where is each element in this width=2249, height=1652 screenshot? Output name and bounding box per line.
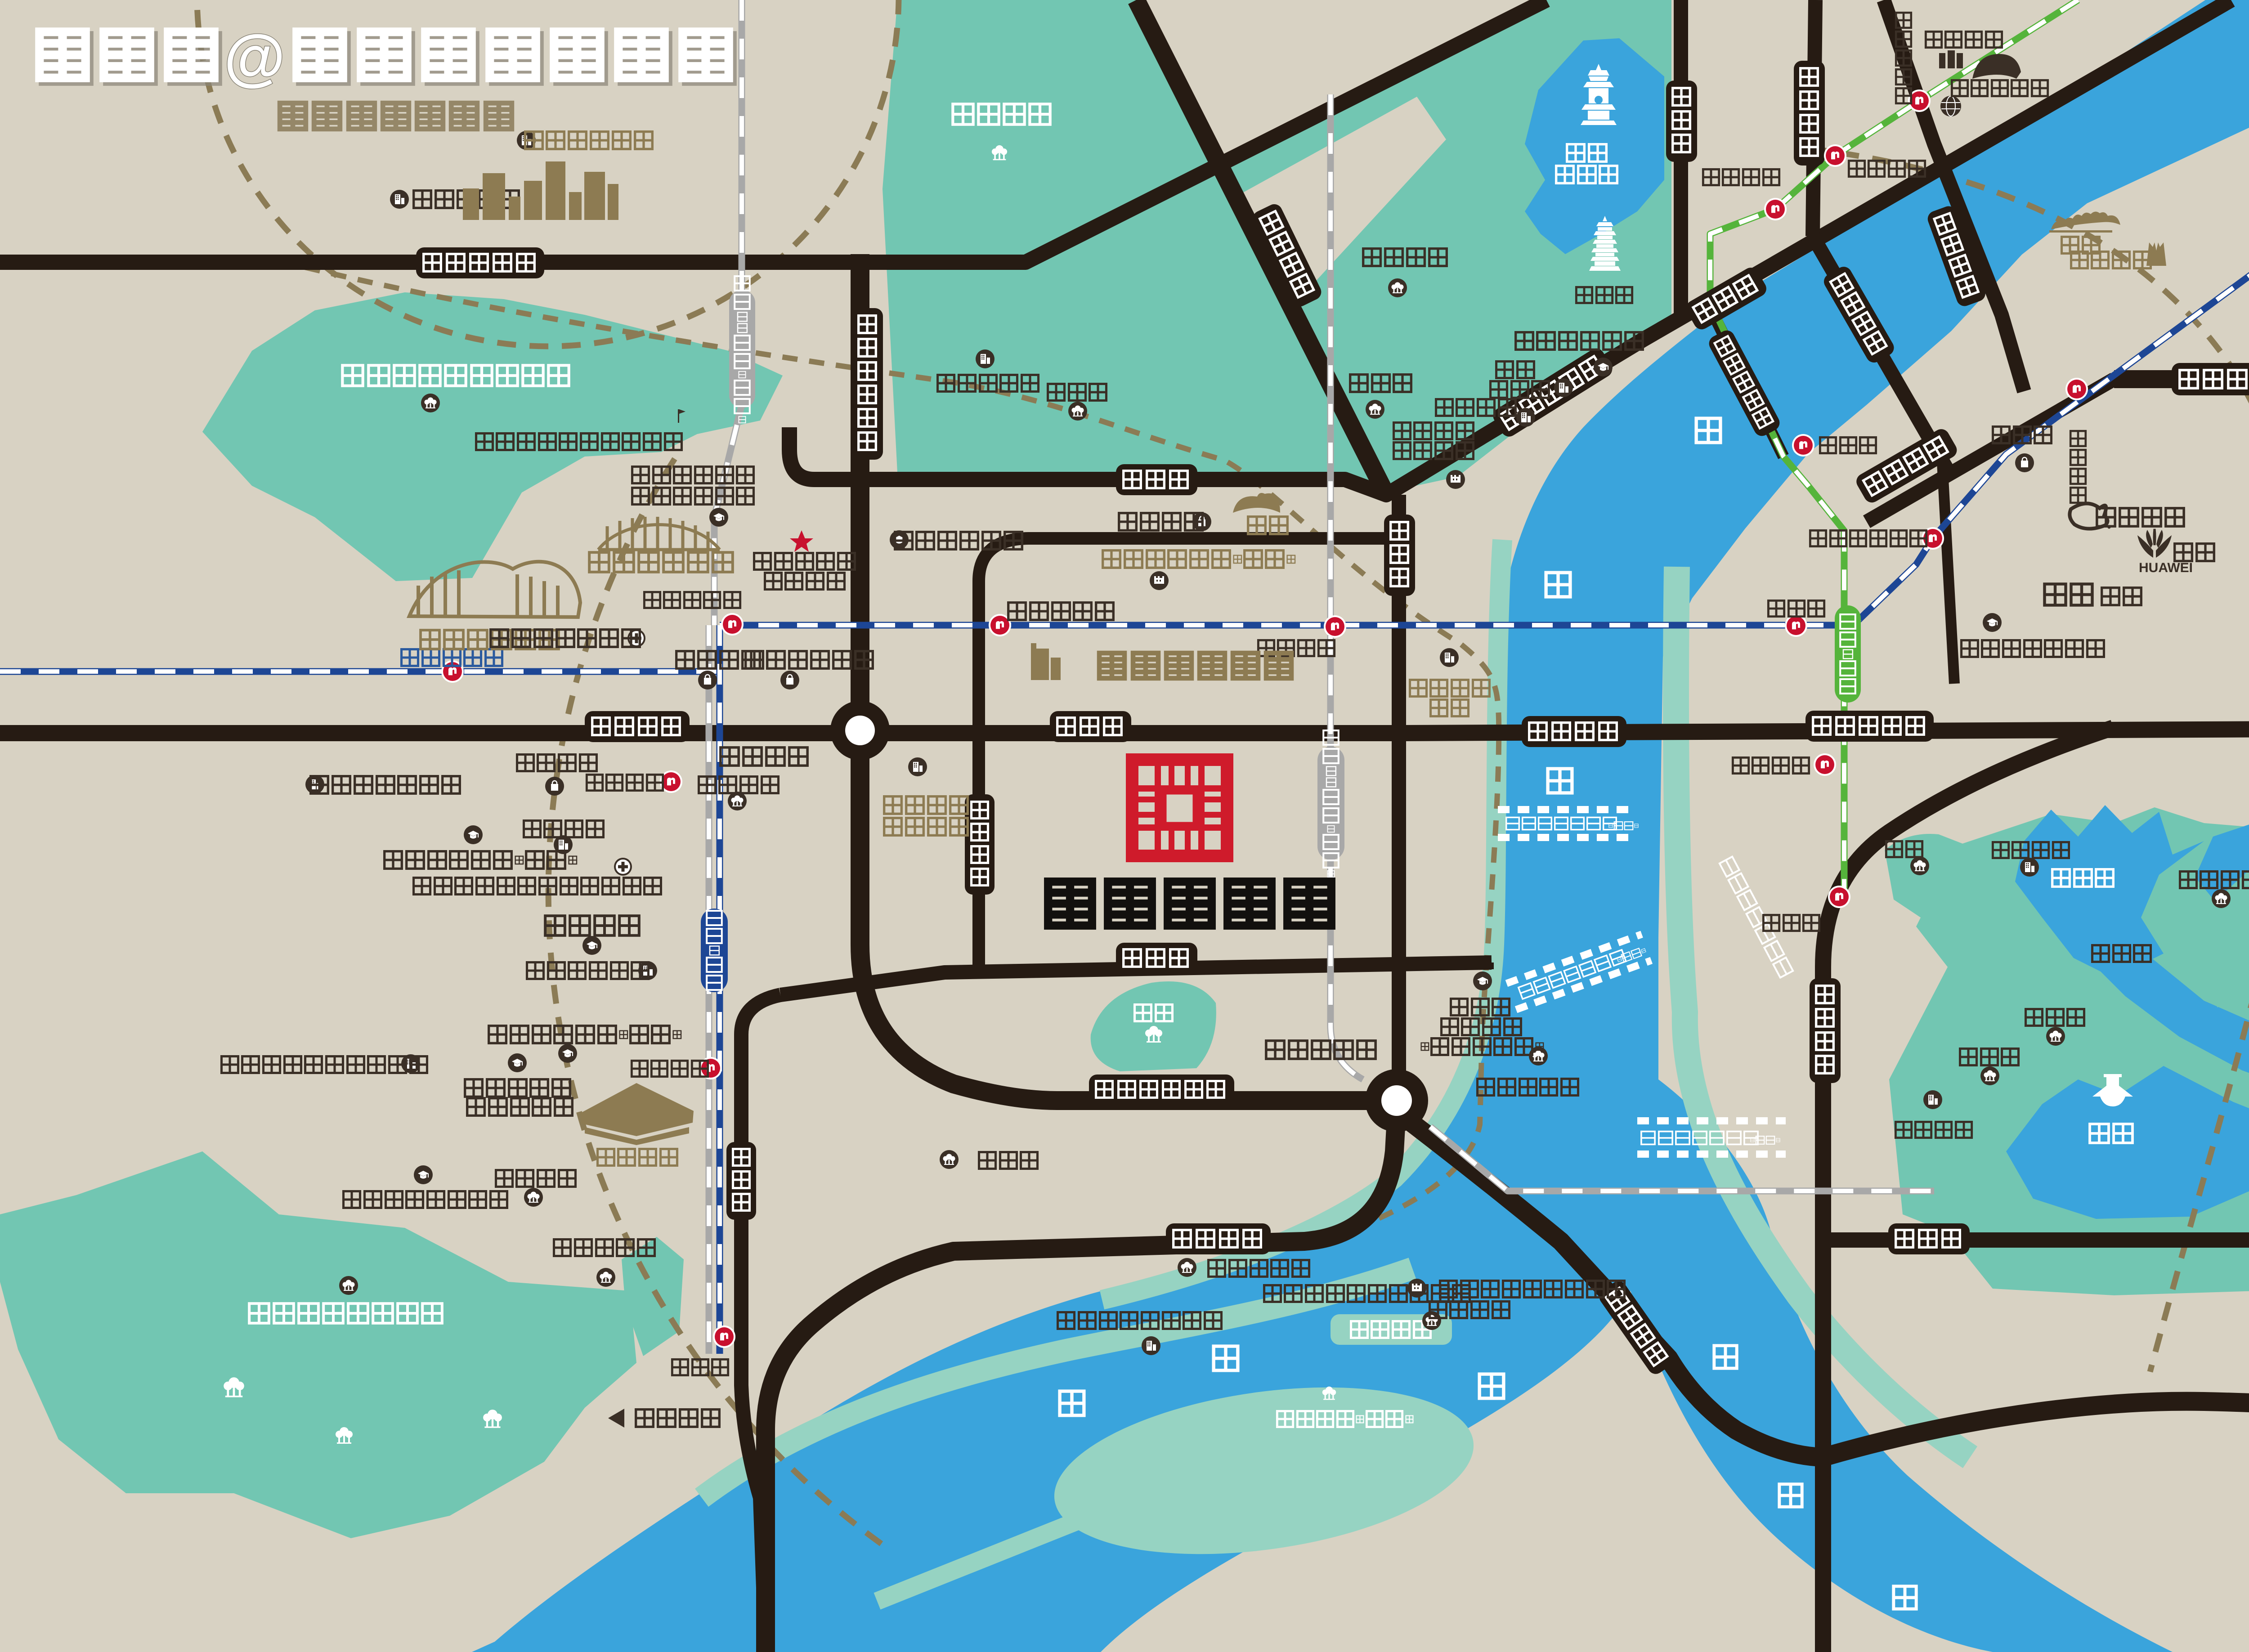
svg-text:@: @ [224, 22, 286, 92]
svg-text:HUAWEI: HUAWEI [2139, 560, 2193, 575]
